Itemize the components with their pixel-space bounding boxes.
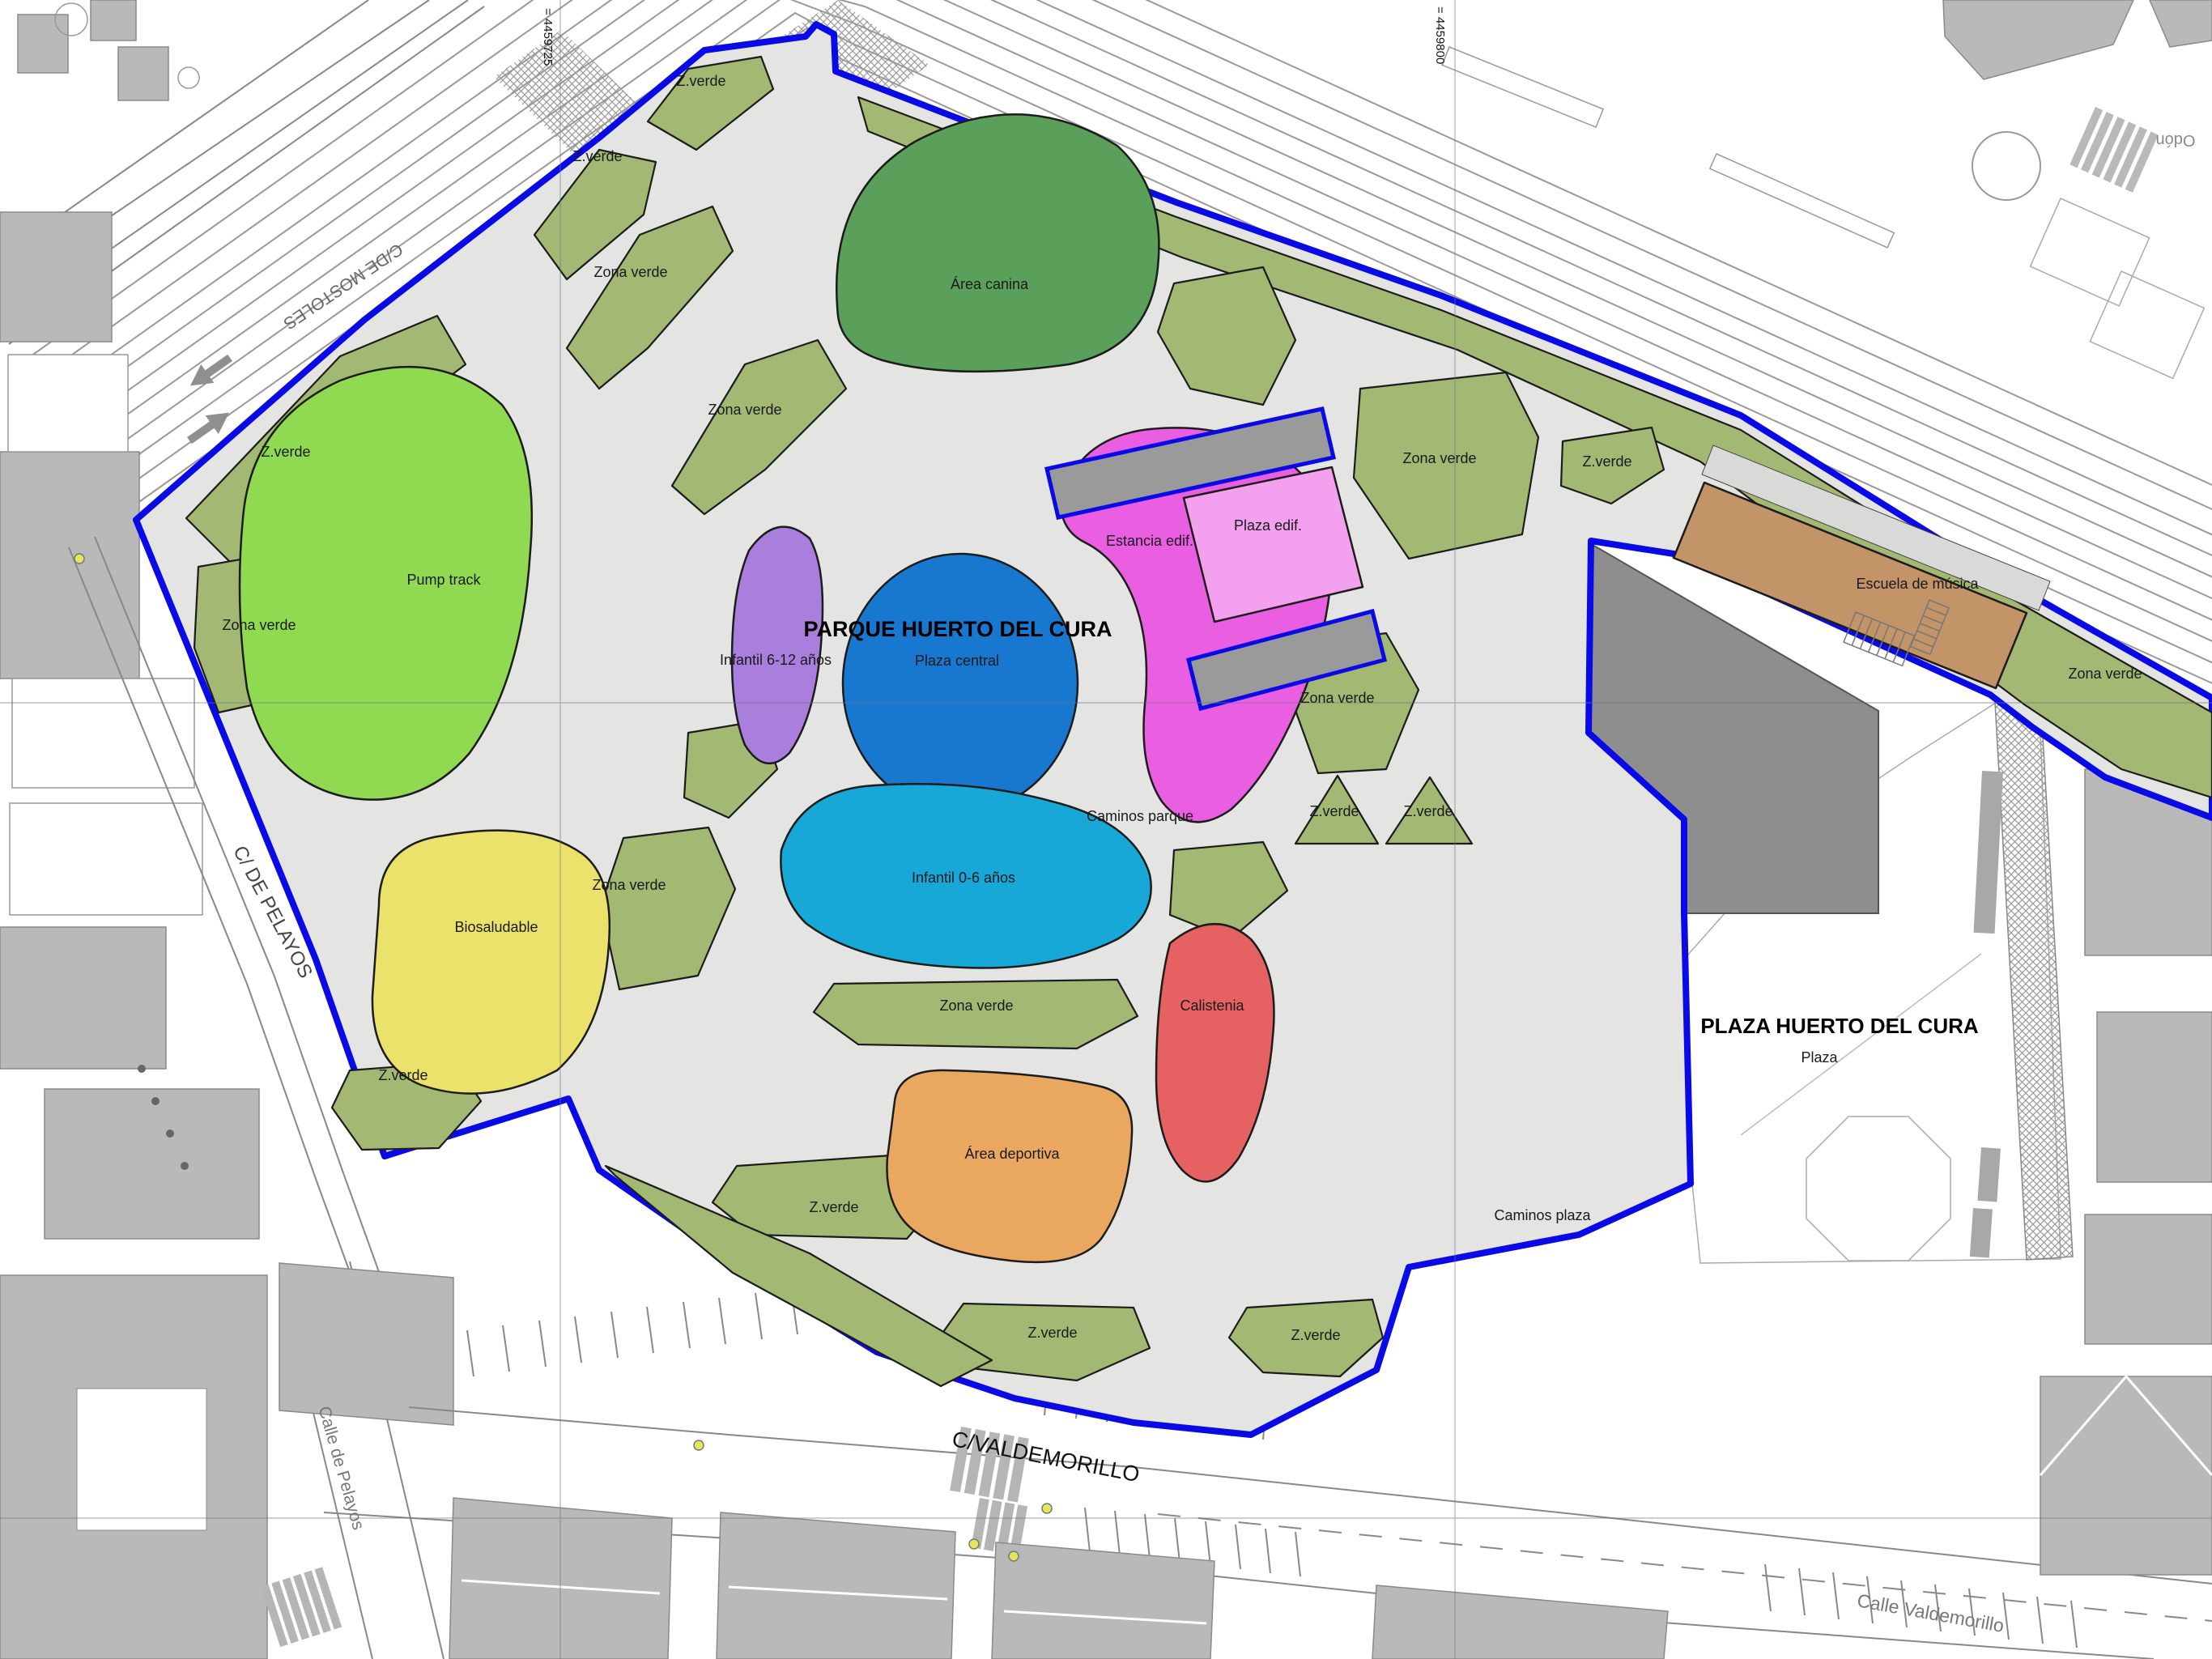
zone-label-zona-verde: Zona verde [708, 402, 781, 418]
zone-label-zona-verde: Zona verde [222, 617, 296, 633]
zone-label-biosaludable: Biosaludable [454, 919, 538, 935]
building-outline [8, 355, 128, 452]
zone-label-infantil-6-12-anos: Infantil 6-12 años [720, 652, 832, 668]
zone-label-z-verde: Z.verde [572, 148, 622, 164]
zone-label-caminos-plaza: Caminos plaza [1494, 1207, 1591, 1223]
building-outline [2090, 271, 2204, 378]
zone-label-infantil-0-6-anos: Infantil 0-6 años [912, 870, 1015, 886]
zone-label-plaza: Plaza [1801, 1049, 1838, 1066]
zone-label-caminos-parque: Caminos parque [1087, 808, 1193, 824]
zone-label-zona-verde: Zona verde [939, 998, 1013, 1014]
zone-label-z-verde: Z.verde [1582, 453, 1631, 470]
buildings-bottom [449, 1498, 1668, 1659]
building-outline [2031, 198, 2150, 306]
zone-label-z-verde: Z.verde [378, 1067, 428, 1083]
buildings-left [0, 927, 259, 1239]
zone-label-area-canina: Área canina [951, 276, 1029, 292]
zone-label-calistenia: Calistenia [1180, 998, 1244, 1014]
zone-label-estancia-edif: Estancia edif. [1106, 533, 1193, 549]
crosswalk [261, 1567, 342, 1647]
zone-zona-verde [814, 980, 1138, 1049]
platform-outline [1442, 47, 1603, 127]
street-label-calle-valdemorillo: Calle Valdemorillo [1856, 1589, 2006, 1636]
street-label-odon: Odón [2156, 131, 2196, 149]
title-label-plaza-huerto-del-cura: PLAZA HUERTO DEL CURA [1700, 1014, 1979, 1038]
zone-label-zona-verde: Zona verde [2068, 666, 2142, 682]
zone-label-area-deportiva: Área deportiva [964, 1146, 1060, 1162]
coord-label-4459725: = 4459725 [541, 8, 555, 66]
buildings-topleft [0, 0, 168, 678]
zone-label-z-verde: Z.verde [676, 73, 725, 89]
zone-label-zona-verde: Zona verde [593, 264, 667, 280]
small-structure [1977, 1147, 2001, 1202]
zone-label-z-verde: Z.verde [1291, 1327, 1340, 1343]
zone-label-plaza-edif: Plaza edif. [1234, 517, 1302, 534]
zone-label-z-verde: Z.verde [1403, 803, 1453, 819]
courtyard [77, 1389, 206, 1530]
roundabout [1972, 132, 2040, 200]
buildings-bottomleft [0, 1263, 453, 1659]
crosswalk [2069, 107, 2158, 193]
small-structure [1970, 1208, 1993, 1258]
zone-label-z-verde: Z.verde [1309, 803, 1359, 819]
zone-label-zona-verde: Zona verde [1402, 450, 1476, 466]
zone-area-deportiva [887, 1070, 1132, 1262]
zone-label-z-verde: Z.verde [1027, 1325, 1077, 1341]
tree-outline [178, 67, 199, 88]
zone-label-z-verde: Z.verde [261, 444, 310, 460]
site-plan-map: Z.verdeZ.verdeZona verdeZona verdeZ.verd… [0, 0, 2212, 1659]
buildings-topright [1943, 0, 2212, 79]
zone-label-escuela-de-musica: Escuela de música [1856, 576, 1979, 592]
zone-label-z-verde: Z.verde [809, 1199, 858, 1215]
building-outline [10, 803, 202, 915]
building-outline [12, 678, 194, 788]
zone-label-zona-verde: Zona verde [1300, 690, 1374, 706]
title-label-parque-huerto-del-cura: PARQUE HUERTO DEL CURA [803, 617, 1112, 641]
coord-label-4459800: = 4459800 [1433, 6, 1447, 64]
zone-plaza-central [843, 554, 1078, 813]
zone-label-zona-verde: Zona verde [592, 877, 666, 893]
platform-outline [1710, 154, 1894, 248]
zone-label-pump-track: Pump track [406, 572, 481, 588]
zone-label-plaza-central: Plaza central [915, 653, 999, 669]
